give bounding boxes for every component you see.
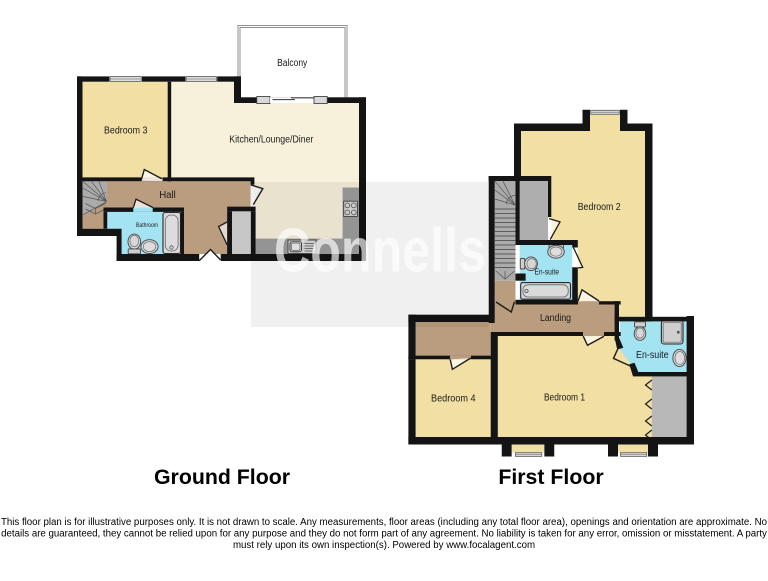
- svg-text:Hall: Hall: [159, 190, 176, 201]
- svg-text:This floor plan is for illustr: This floor plan is for illustrative purp…: [1, 517, 767, 528]
- svg-text:Bedroom 2: Bedroom 2: [578, 202, 621, 213]
- svg-text:Ground Floor: Ground Floor: [154, 465, 290, 489]
- svg-text:Balcony: Balcony: [277, 58, 307, 69]
- svg-text:Bedroom 4: Bedroom 4: [431, 394, 476, 405]
- svg-text:Bathroom: Bathroom: [136, 223, 158, 229]
- svg-text:must rely upon its own inspect: must rely upon its own inspection(s). Po…: [233, 540, 535, 551]
- svg-text:First Floor: First Floor: [498, 465, 603, 489]
- svg-text:Landing: Landing: [540, 313, 571, 324]
- svg-text:Bedroom 1: Bedroom 1: [544, 392, 585, 403]
- svg-text:Kitchen/Lounge/Diner: Kitchen/Lounge/Diner: [229, 135, 314, 146]
- svg-text:En-suite: En-suite: [636, 350, 669, 361]
- svg-text:Connells: Connells: [274, 216, 486, 285]
- svg-text:En-suite: En-suite: [534, 268, 559, 277]
- svg-text:Bedroom 3: Bedroom 3: [104, 126, 148, 137]
- svg-text:details are guaranteed, they c: details are guaranteed, they cannot be r…: [1, 529, 767, 540]
